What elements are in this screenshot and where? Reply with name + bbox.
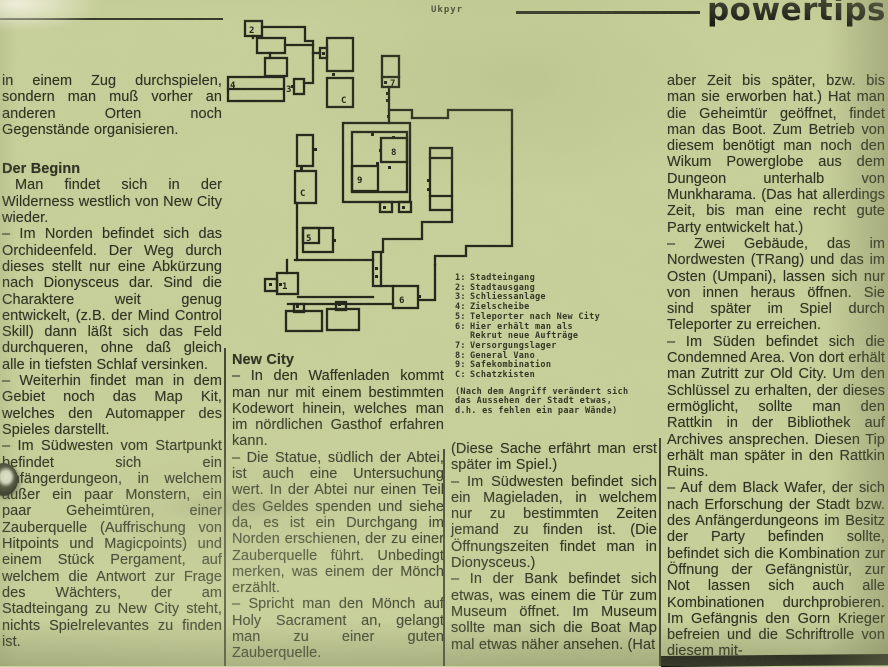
map-label-1: 1 bbox=[282, 282, 287, 292]
legend-note: (Nach dem Angriff verändert sich das Aus… bbox=[455, 388, 665, 417]
map-label-8: 8 bbox=[391, 148, 396, 158]
heading-der-beginn: Der Beginn bbox=[2, 161, 222, 177]
column-separator bbox=[224, 348, 226, 666]
paragraph: – Im Südwesten befindet sich ein Magiela… bbox=[451, 474, 657, 572]
paragraph: – Spricht man den Mönch auf Holy Sacrame… bbox=[232, 596, 444, 661]
paragraph: aber Zeit bis später, bzw. bis man sie e… bbox=[667, 73, 885, 236]
map-label-5: 5 bbox=[306, 234, 311, 244]
map-legend: 1:Stadteingang 2:Stadtausgang 3:Schliess… bbox=[455, 274, 665, 417]
headline-rule bbox=[516, 11, 700, 14]
map-label-2: 2 bbox=[249, 26, 254, 36]
paragraph: – In den Waffenladen kommt man nur mit e… bbox=[232, 368, 444, 449]
column-4: aber Zeit bis später, bzw. bis man sie e… bbox=[667, 73, 885, 660]
map-label-9: 9 bbox=[357, 176, 362, 186]
magazine-scan-page: { "meta": { "map_caption": "Ukpyr", "sec… bbox=[0, 0, 888, 666]
map-room-labels: 2 3 4 C 7 8 9 C 5 1 6 bbox=[230, 26, 404, 306]
page: Ukpyr powertips bbox=[0, 0, 888, 666]
paragraph: – In der Bank befindet sich etwas, was e… bbox=[451, 571, 657, 652]
map-label-c-top: C bbox=[341, 96, 346, 106]
paragraph: – Im Südwesten vom Startpunkt befindet s… bbox=[2, 438, 222, 650]
heading-new-city: New City bbox=[232, 352, 444, 368]
map-label-4: 4 bbox=[230, 81, 236, 91]
paragraph: in einem Zug durchspielen, sondern man m… bbox=[2, 73, 222, 138]
legend-item: C:Schatzkisten bbox=[455, 371, 665, 381]
paragraph: – Die Statue, südlich der Abtei, ist auc… bbox=[232, 450, 444, 597]
section-title: powertips bbox=[700, 0, 886, 28]
top-left-rule bbox=[0, 18, 223, 20]
paragraph: – Im Norden befindet sich das Orchideenf… bbox=[2, 226, 222, 373]
column-2: New City – In den Waffenladen kommt man … bbox=[232, 352, 444, 662]
paragraph: – Zwei Gebäude, das im Nordwesten (TRang… bbox=[667, 236, 885, 334]
bottom-black-bar bbox=[661, 654, 888, 667]
map-label-3: 3 bbox=[286, 85, 291, 95]
paragraph: (Diese Sache erfährt man erst später im … bbox=[451, 441, 657, 474]
map-label-6: 6 bbox=[399, 296, 404, 306]
column-1: in einem Zug durchspielen, sondern man m… bbox=[2, 73, 222, 650]
map-label-7: 7 bbox=[390, 79, 395, 89]
column-separator bbox=[443, 449, 445, 666]
paragraph: – Auf dem Black Wafer, der sich nach Erf… bbox=[667, 480, 885, 659]
paragraph: – Weiterhin findet man in dem Gebiet noc… bbox=[2, 373, 222, 438]
paragraph: Man findet sich in der Wilderness westli… bbox=[2, 177, 222, 226]
map-label-c-mid: C bbox=[300, 189, 305, 199]
map-caption: Ukpyr bbox=[431, 5, 463, 15]
map-door-markers bbox=[269, 52, 430, 308]
paragraph: – Im Süden befindet sich die Condemned A… bbox=[667, 334, 885, 481]
column-separator bbox=[659, 438, 661, 666]
column-3: (Diese Sache erfährt man erst später im … bbox=[451, 441, 657, 653]
